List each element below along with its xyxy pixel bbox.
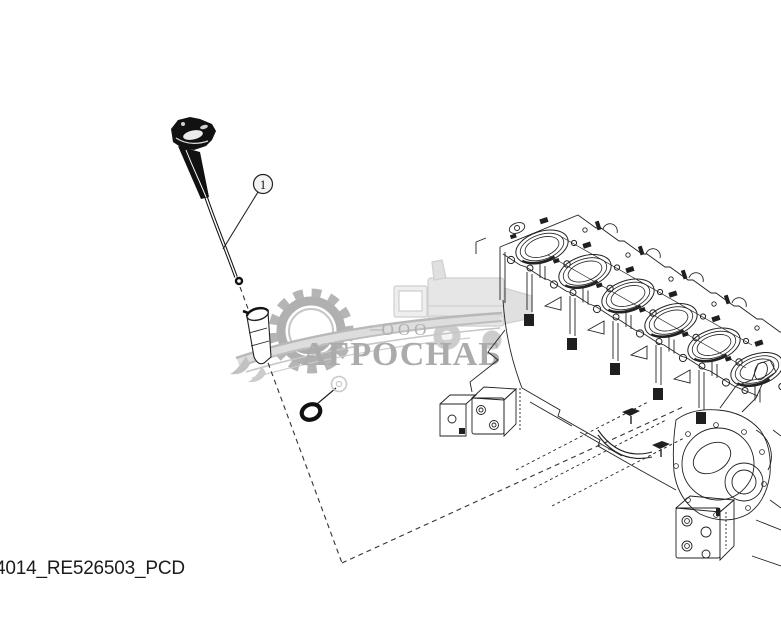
drawing-caption: 4014_RE526503_PCD: [0, 558, 185, 580]
dipstick-cap: [171, 117, 216, 150]
bottom-mounting-block: [676, 496, 734, 560]
dipstick-illustration: [171, 117, 242, 284]
parts-diagram: ООО АГРОСНАБ: [0, 0, 781, 641]
o-ring-illustration: [299, 377, 346, 423]
diagram-page: ООО АГРОСНАБ: [0, 0, 781, 641]
callout-1-label: 1: [260, 178, 266, 192]
callout-1[interactable]: 1: [223, 175, 273, 250]
engine-mount-brackets: [440, 387, 520, 436]
faint-callout-circle: [332, 377, 347, 392]
watermark-logo: ООО АГРОСНАБ: [230, 260, 532, 382]
engine-block-illustration: [440, 213, 781, 566]
watermark-company-name: АГРОСНАБ: [302, 336, 502, 373]
flywheel-housing: [673, 360, 781, 566]
view-corner-mark: [476, 238, 486, 254]
